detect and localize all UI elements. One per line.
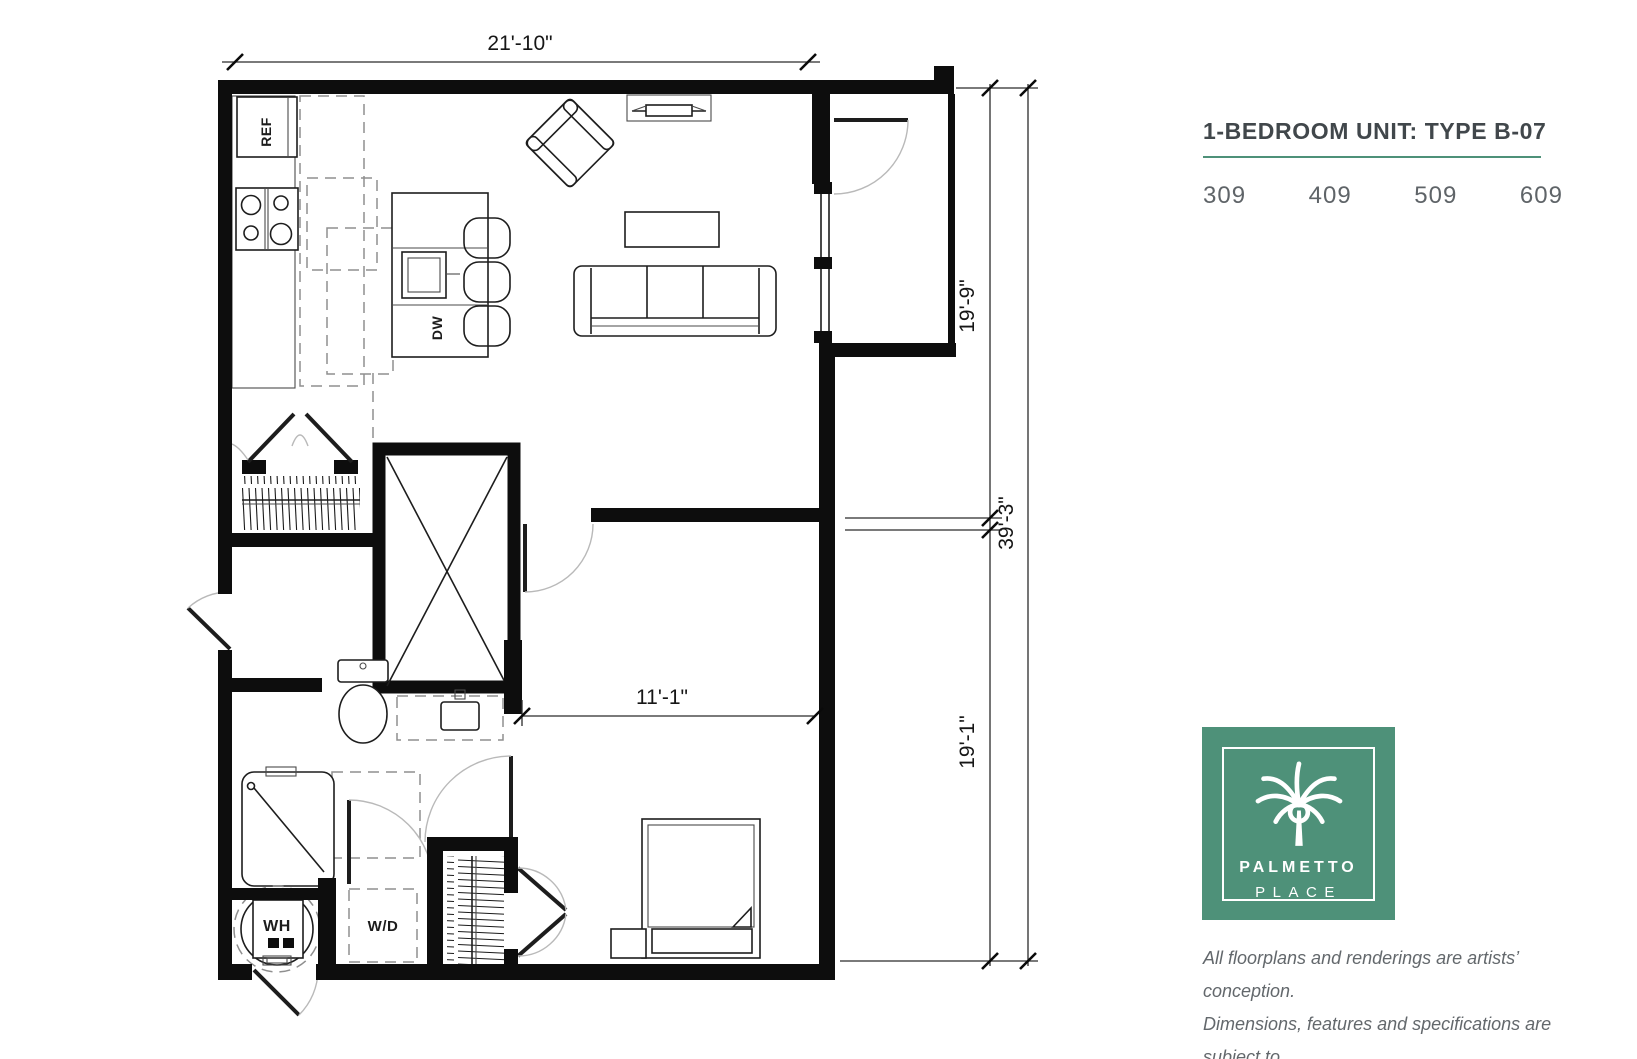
- water-heater-label: WH: [263, 918, 291, 935]
- balcony-glass-wall: [814, 182, 832, 343]
- shaft: [379, 449, 514, 687]
- refrigerator: REF: [237, 97, 297, 157]
- floorplan-sheet: REF DW: [0, 0, 1637, 1059]
- floorplan-drawing: REF DW: [0, 0, 1040, 1059]
- disclaimer-line: Dimensions, features and specifications …: [1203, 1008, 1613, 1059]
- kitchen-island: DW: [392, 193, 510, 357]
- unit-number: 509: [1414, 182, 1457, 210]
- balcony-door: [834, 120, 908, 194]
- unit-number: 609: [1520, 182, 1563, 210]
- bedroom-door: [525, 524, 593, 592]
- logo-name-top: PALMETTO: [1202, 859, 1395, 877]
- closet-door-leaf: [306, 414, 352, 462]
- dimension-bedroom: 11'-1": [514, 686, 823, 726]
- dishwasher-label: DW: [429, 316, 445, 341]
- stove: [236, 188, 298, 250]
- dimension-top-label: 21'-10": [487, 32, 552, 55]
- title-underline: [1203, 156, 1541, 158]
- toilet: [338, 660, 388, 743]
- dimension-right-lower-label: 19'-1": [956, 715, 979, 769]
- refrigerator-label: REF: [258, 117, 274, 147]
- dimension-right-overall-label: 39'-3": [995, 496, 1018, 550]
- armchair: [525, 98, 616, 189]
- page-title: 1-BEDROOM UNIT: TYPE B-07: [1203, 118, 1603, 145]
- dimension-bedroom-label: 11'-1": [636, 686, 688, 709]
- dimension-top: 21'-10": [222, 32, 820, 70]
- tv-console: [627, 95, 711, 121]
- bed: [642, 819, 760, 958]
- water-heater-door: [254, 970, 318, 1015]
- entry-door: [188, 592, 230, 649]
- dimension-right: 19'-9" 19'-1" 39'-3": [840, 80, 1038, 969]
- palm-tree-icon: [1243, 753, 1355, 853]
- bathroom: [242, 660, 511, 886]
- vanity-sink: [397, 690, 503, 740]
- shower: [242, 767, 334, 886]
- dimension-right-upper-label: 19'-9": [956, 279, 979, 333]
- disclaimer-line: All floorplans and renderings are artist…: [1203, 942, 1613, 1008]
- unit-number: 309: [1203, 182, 1246, 210]
- washer-dryer-label: W/D: [368, 918, 399, 935]
- washer-dryer: W/D: [349, 889, 417, 962]
- unit-numbers: 309 409 509 609: [1203, 182, 1563, 210]
- unit-number: 409: [1309, 182, 1352, 210]
- disclaimer-text: All floorplans and renderings are artist…: [1203, 942, 1613, 1059]
- palmetto-place-logo: PALMETTO PLACE: [1202, 727, 1395, 920]
- nightstand: [611, 929, 646, 958]
- coffee-table: [625, 212, 719, 247]
- logo-name-bottom: PLACE: [1202, 884, 1395, 901]
- closet-door-leaf: [248, 414, 294, 462]
- sofa: [574, 266, 776, 336]
- entry-closet: [220, 414, 360, 530]
